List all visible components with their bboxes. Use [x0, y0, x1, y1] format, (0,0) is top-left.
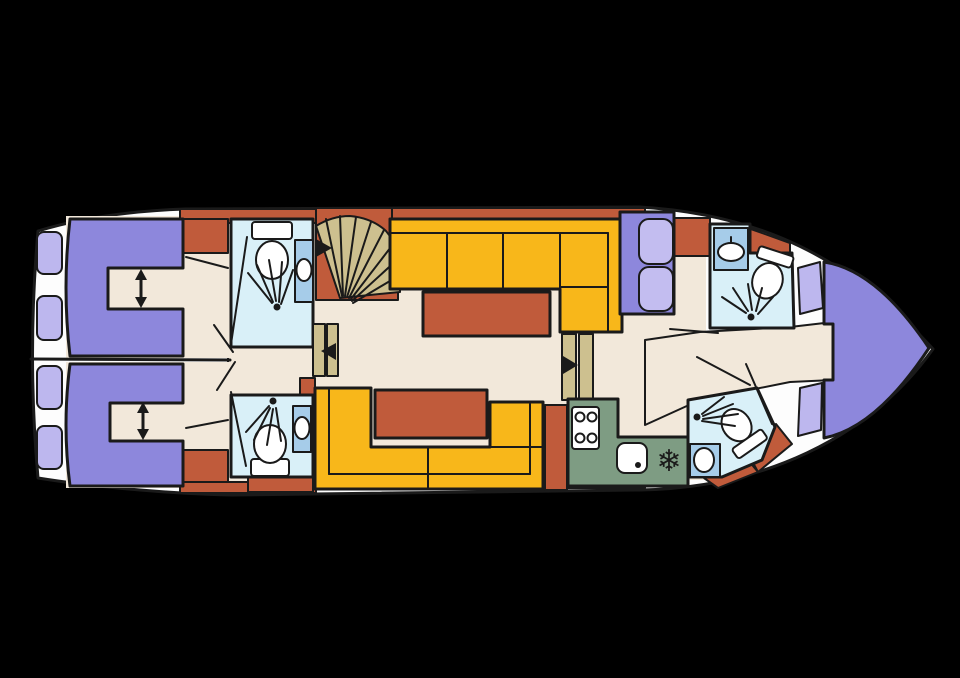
freezer-icon: ❄ [656, 444, 681, 479]
settee [620, 212, 674, 314]
aft-head-top [231, 219, 313, 347]
salon-table [423, 292, 550, 336]
galley-sink [617, 443, 647, 473]
midship-steps-aft [313, 324, 338, 376]
washbasin [718, 243, 744, 261]
washbasin [694, 448, 714, 472]
washbasin [297, 259, 312, 281]
cabinet-aft-top-corner [182, 219, 228, 253]
page: { "title": "yacht-deck-floor-plan", "col… [0, 0, 960, 678]
settee-cushion [639, 219, 673, 264]
dinette-table [375, 390, 487, 438]
aft-head-bottom [231, 392, 313, 477]
cabinet-aft-head-bottom [248, 477, 313, 492]
settee-cushion [639, 267, 673, 311]
boat-floor-plan: ❄ [0, 0, 960, 678]
washbasin [295, 417, 310, 439]
cabin-divider-wall [31, 359, 230, 360]
sink-drain [635, 462, 641, 468]
toilet-tank [252, 222, 292, 239]
cabinet-settee-side [673, 218, 710, 256]
cabinet-galley-divider [545, 405, 567, 490]
